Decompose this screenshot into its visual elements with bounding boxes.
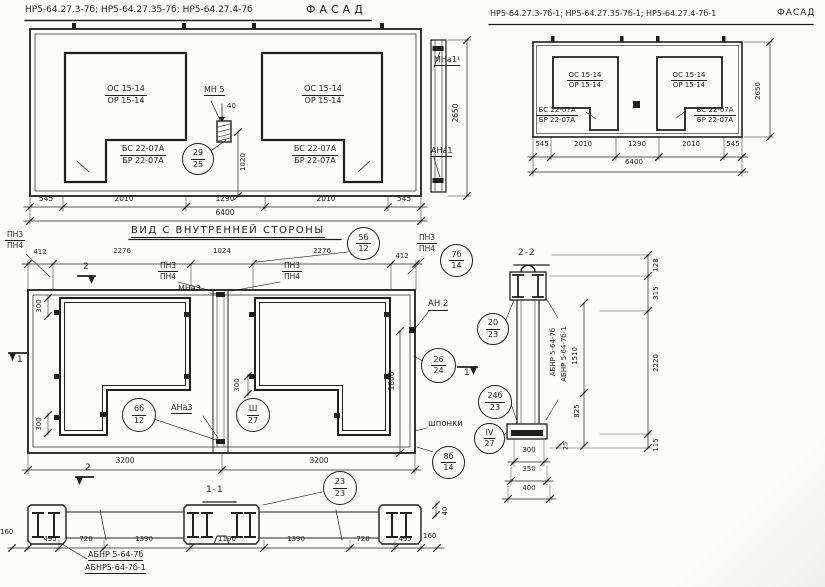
- marker-circle-sh-27: Ш 27: [236, 398, 270, 432]
- dim-label: 495: [390, 536, 420, 544]
- dim-label: 495: [35, 536, 65, 544]
- dim-label: 545: [721, 141, 745, 149]
- section-2-2-title: 2-2: [518, 249, 536, 259]
- embed-mark-mna1: МНа1¹: [434, 56, 460, 66]
- window-mark-left: ОС 15-14 ОР 15-14: [559, 71, 611, 90]
- marker-circle-24b-23: 24б 23: [478, 385, 512, 419]
- dim-label: 2010: [568, 141, 598, 149]
- marker-circle-26-24: 26 24: [421, 348, 456, 383]
- product-label: АБНР 5-64-7б: [550, 328, 558, 376]
- dim-300: 300: [36, 299, 44, 312]
- dim-label: 300: [514, 447, 544, 455]
- product-label: АБНР 5-64-7б: [88, 551, 143, 561]
- inner-view-title: ВИД С ВНУТРЕННЕЙ СТОРОНЫ: [131, 225, 325, 238]
- dim-label: 2010: [311, 195, 341, 203]
- dim-40: 40: [442, 507, 450, 516]
- dim-128: 128: [653, 258, 661, 271]
- marker-circle-23-23: 23 23: [323, 471, 357, 505]
- dim-label: 2276: [105, 248, 139, 256]
- dim-160: 160: [423, 533, 436, 541]
- section-1-1-title: 1-1: [206, 486, 224, 496]
- section-mark-1: 1: [464, 369, 470, 379]
- marker-circle-6b-12: 6б 12: [122, 398, 156, 432]
- dim-label: 350: [514, 466, 544, 474]
- dim-label: 3200: [108, 457, 142, 465]
- embed-mark-ana3: АНа3: [171, 404, 192, 414]
- pn-marks: ПН3 ПН4: [155, 261, 181, 281]
- dim-2650-left: 2650: [452, 103, 460, 122]
- dim-2220: 2220: [653, 354, 661, 372]
- embed-mark-an2: АН 2: [428, 300, 448, 311]
- window-mark-left: ОС 15-14 ОР 15-14: [95, 84, 157, 105]
- dim-315: 315: [653, 286, 661, 299]
- sill-mark-left: БС 22-07А БР 22-07А: [110, 144, 176, 165]
- dim-300: 300: [234, 378, 242, 391]
- facade-left-title-codes: НР5-64.27.3-7б; НР5-64.27.35-7б; НР5-64.…: [25, 6, 253, 16]
- dim-label: 1290: [622, 141, 652, 149]
- dim-total: 6400: [619, 159, 649, 167]
- dim-825: 825: [574, 404, 582, 417]
- dim-300: 300: [36, 417, 44, 430]
- dim-160: 160: [0, 529, 13, 537]
- window-mark-right: ОС 15-14 ОР 15-14: [292, 84, 354, 105]
- marker-circle-iv-27: IV 27: [474, 423, 505, 454]
- sill-mark-right: БС 22-07А БР 22-07А: [686, 106, 744, 125]
- embed-mark-mna3: МНа3: [178, 285, 201, 294]
- dim-40: 40: [227, 103, 236, 111]
- dim-total: 6400: [210, 209, 240, 217]
- marker-circle-5b-12: 5б 12: [347, 227, 380, 260]
- shponki-label: шпонки: [428, 420, 463, 429]
- sill-mark-left: БС 22-07А БР 22-07А: [528, 106, 586, 125]
- dim-1510: 1510: [572, 347, 580, 365]
- section-mark-2: 2: [83, 263, 89, 273]
- dim-115: 115: [653, 438, 661, 451]
- dim-label: 545: [530, 141, 554, 149]
- dim-label: 1190: [212, 536, 242, 544]
- dim-label: 1290: [210, 195, 240, 203]
- facade-right-title-view: ФАСАД: [777, 9, 815, 19]
- dim-label: 1390: [129, 536, 159, 544]
- dim-label: 412: [30, 249, 50, 257]
- marker-circle-7b-14: 7б 14: [440, 244, 473, 277]
- dim-label: 400: [514, 485, 544, 493]
- dim-1020: 1020: [240, 153, 248, 171]
- mn5-label: МН 5: [204, 86, 225, 96]
- dim-label: 1024: [205, 248, 239, 256]
- dim-label: 2010: [109, 195, 139, 203]
- dim-label: 720: [71, 536, 101, 544]
- dim-label: 3200: [302, 457, 336, 465]
- dim-label: 2276: [305, 248, 339, 256]
- dim-2650-right: 2650: [755, 82, 763, 100]
- sill-mark-right: БС 22-07А БР 22-07А: [282, 144, 348, 165]
- dim-label: 545: [394, 195, 414, 203]
- marker-circle-8b-14: 8б 14: [432, 446, 465, 479]
- product-label: АБНР5-64-7б-1: [85, 564, 146, 574]
- section-mark-2: 2: [85, 464, 91, 474]
- product-label: АБНР 5-64-7б-1: [561, 326, 569, 381]
- dim-label: 720: [348, 536, 378, 544]
- section-mark-1: 1: [17, 356, 23, 366]
- embed-mark-ana1: АНа1: [431, 147, 452, 157]
- dim-label: 545: [36, 195, 56, 203]
- facade-left-title-view: ФАСАД: [306, 4, 367, 16]
- dim-1800: 1800: [388, 371, 396, 390]
- window-mark-right: ОС 15-14 ОР 15-14: [663, 71, 715, 90]
- marker-circle-20-23: 20 23: [477, 313, 509, 345]
- pn-marks: ПН3 ПН4: [414, 233, 440, 253]
- drawing-sheet: НР5-64.27.3-7б; НР5-64.27.35-7б; НР5-64.…: [0, 0, 825, 587]
- dim-label: 412: [392, 253, 412, 261]
- dim-label: 2010: [676, 141, 706, 149]
- dim-25: 25: [562, 442, 569, 450]
- marker-circle-29-25: 29 25: [182, 143, 214, 175]
- facade-right-title-codes: НР5-64.27.3-7б-1; НР5-64.27.35-7б-1; НР5…: [490, 10, 716, 19]
- pn-marks: ПН3 ПН4: [2, 230, 28, 250]
- pn-marks: ПН3 ПН4: [279, 261, 305, 281]
- dim-label: 1390: [281, 536, 311, 544]
